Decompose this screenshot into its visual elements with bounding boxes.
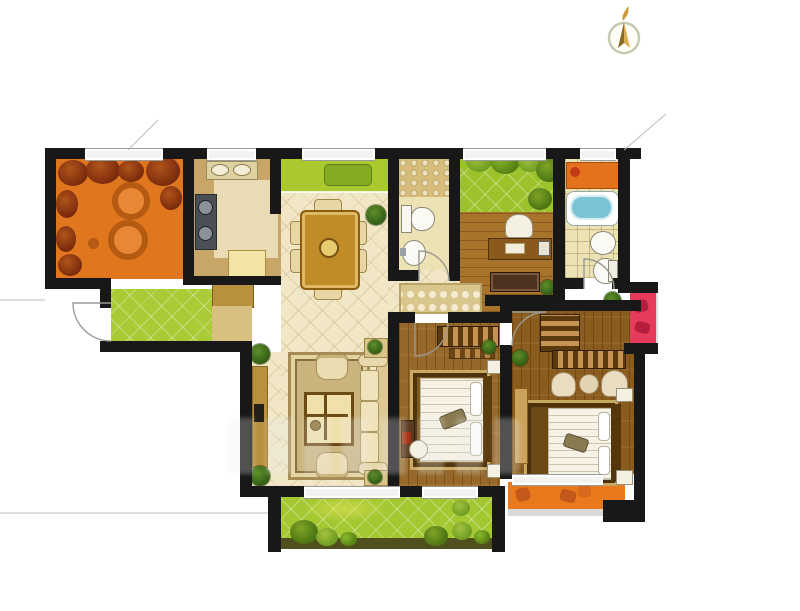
master-wardrobe: [540, 314, 580, 352]
wall: [388, 148, 399, 281]
wall: [565, 278, 584, 289]
bed-pillow: [598, 412, 610, 441]
bed-pillow: [598, 446, 610, 475]
master-wardrobe-rail: [552, 350, 626, 369]
bed-pillow: [470, 382, 482, 416]
desk-monitor: [538, 241, 550, 256]
stool-chair: [551, 372, 576, 397]
terrace-plant: [160, 186, 182, 210]
window: [302, 148, 375, 161]
study-chair: [505, 214, 533, 238]
wall: [400, 486, 422, 497]
wall: [45, 148, 56, 289]
lawn-highlight: [300, 496, 390, 522]
floor-plan: [0, 0, 800, 611]
wall: [268, 486, 281, 552]
terrace-plant: [56, 190, 78, 218]
living-plant: [250, 344, 270, 364]
window: [207, 148, 256, 161]
wall: [603, 500, 645, 522]
washbasin: [590, 231, 616, 255]
balcony-shrub: [316, 528, 338, 546]
shoe-cabinet: [212, 282, 254, 308]
entry-garden: [111, 289, 212, 341]
coffee-table-divider: [304, 414, 348, 417]
north-arrow-icon: [609, 6, 639, 53]
window: [304, 486, 400, 499]
kitchen-sink-basin: [211, 164, 229, 176]
kitchen-floor-tiles: [214, 180, 278, 258]
master-balcony-sill: [508, 509, 608, 516]
wall: [100, 278, 111, 308]
window: [422, 486, 478, 499]
wall: [618, 282, 658, 293]
stove-burner: [198, 226, 213, 241]
nightstand: [616, 388, 633, 402]
terrace-plant: [58, 160, 88, 186]
bay-sill: [281, 191, 388, 193]
armchair: [316, 354, 348, 380]
watermark: [228, 418, 520, 474]
wall: [270, 148, 281, 214]
bay-window-bench: [324, 164, 372, 186]
desk-blotter: [505, 243, 525, 254]
corner-plant: [368, 340, 382, 354]
round-stool: [579, 374, 599, 394]
wall: [634, 343, 645, 515]
kitchen-sink-basin: [233, 164, 251, 176]
sofa-seat: [360, 370, 379, 401]
bedroom-plant: [482, 340, 496, 354]
wall: [100, 341, 252, 352]
wall: [492, 486, 505, 552]
wall: [618, 148, 630, 288]
terrace-plant: [118, 160, 144, 182]
washbasin-tap: [400, 248, 406, 256]
stove-burner: [198, 200, 213, 215]
bath-cabinet-item: [570, 167, 580, 177]
window: [512, 474, 603, 486]
balcony-shrub: [474, 530, 490, 544]
wall: [183, 276, 281, 285]
terrace-chair: [112, 182, 150, 220]
terrace-plant: [58, 254, 82, 276]
kitchen-refrigerator: [228, 250, 266, 278]
window: [580, 148, 616, 161]
study-bookshelf: [490, 272, 540, 292]
wall: [388, 270, 419, 281]
wall: [449, 148, 460, 281]
master-plant: [512, 350, 528, 366]
window: [463, 148, 546, 161]
terrace-stool: [88, 238, 99, 249]
balcony-shrub: [424, 526, 448, 546]
wall: [512, 300, 641, 311]
dining-centerpiece: [319, 238, 339, 258]
balcony-shrub: [452, 522, 472, 540]
dining-plant: [366, 205, 386, 225]
window: [85, 148, 163, 161]
wall: [553, 148, 565, 306]
balcony-shrub: [340, 532, 357, 546]
terrace-chair: [108, 220, 148, 260]
balcony-flower: [578, 485, 591, 497]
shower-area: [399, 159, 449, 197]
bathtub-water: [570, 195, 613, 220]
terrace-plant: [56, 226, 76, 252]
wall: [500, 300, 512, 312]
runner-rug: [399, 283, 482, 314]
wall: [448, 312, 512, 323]
entry-shrub: [452, 500, 470, 516]
toilet-bowl: [411, 207, 435, 231]
balcony-shrub: [290, 520, 318, 544]
nightstand: [616, 470, 633, 485]
garden-shrub: [528, 188, 552, 210]
wall: [183, 148, 194, 282]
wall: [388, 312, 415, 323]
entry-doormat: [212, 306, 252, 341]
